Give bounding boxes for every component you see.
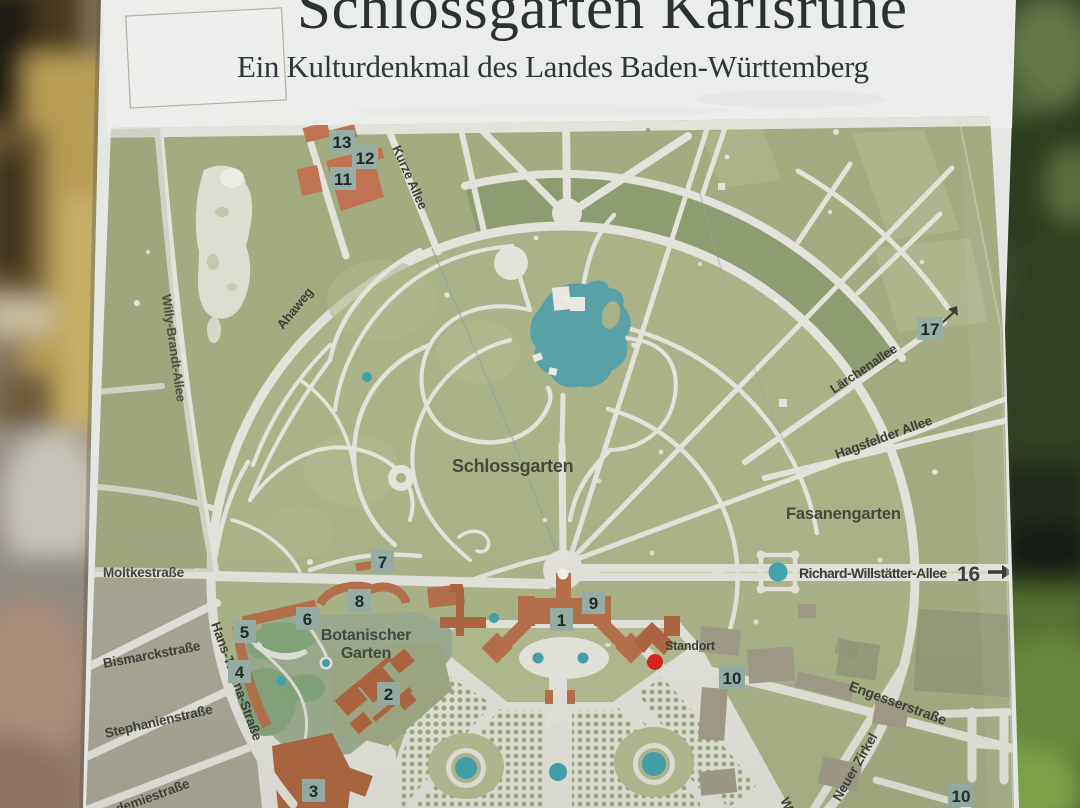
svg-text:Ein Kulturdenkmal des Landes B: Ein Kulturdenkmal des Landes Baden-Württ… bbox=[237, 49, 869, 84]
svg-text:Schlossgarten Karlsruhe: Schlossgarten Karlsruhe bbox=[297, 0, 907, 42]
